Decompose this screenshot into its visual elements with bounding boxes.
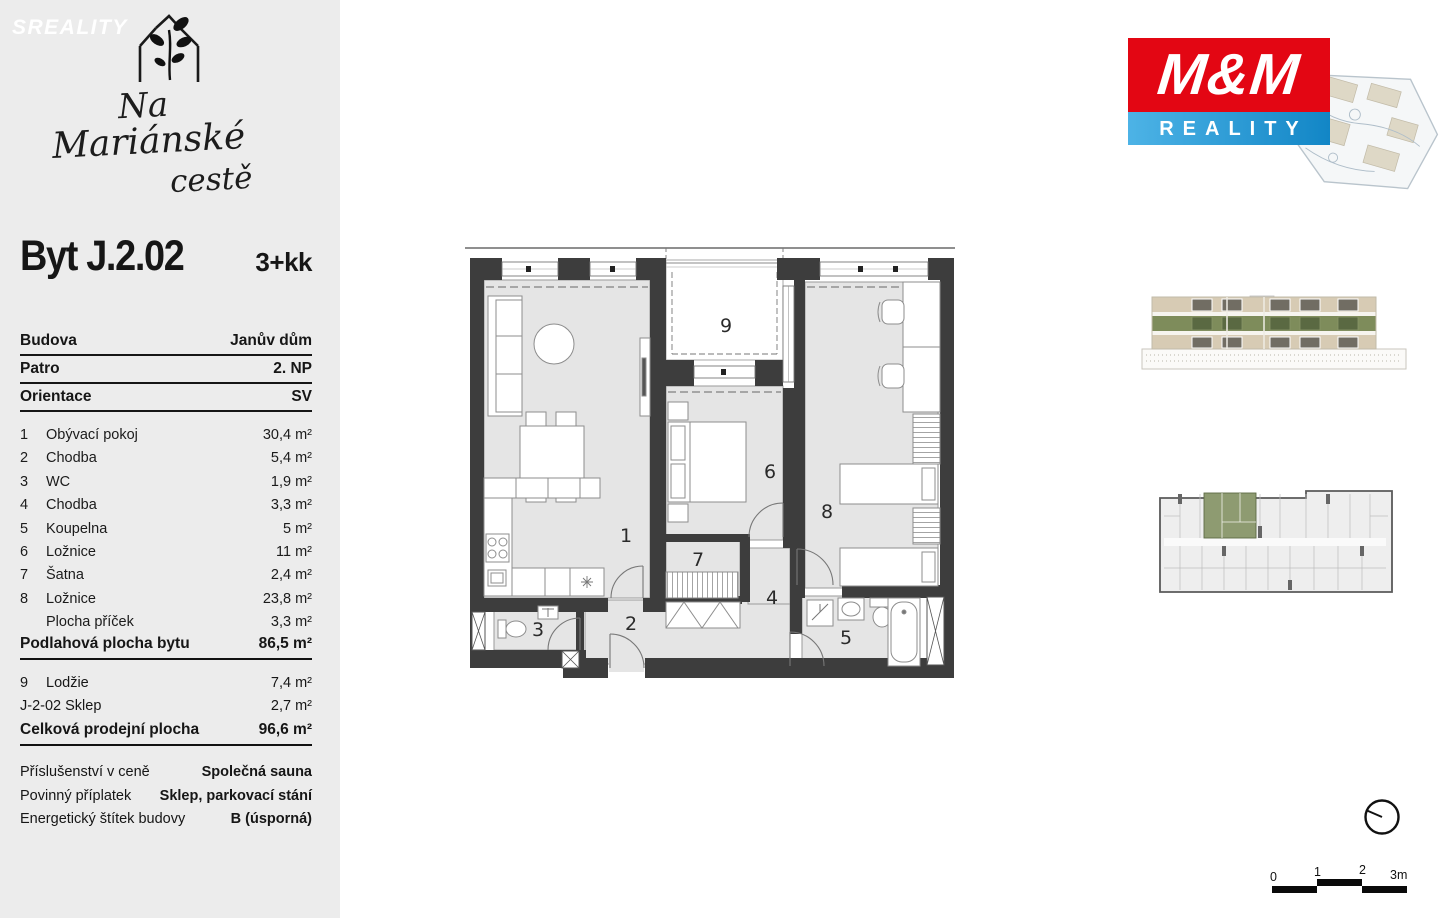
page: SREALITY Na Mariánské cestě Byt J.2.02 3…: [0, 0, 1440, 918]
toilet: [506, 621, 526, 637]
sreality-watermark: SREALITY: [12, 16, 128, 40]
floor-overview-plan: [1156, 486, 1396, 606]
room-row: 2Chodba5,4 m²: [20, 447, 312, 470]
stove: [486, 534, 509, 562]
scale-tick-2: 2: [1359, 864, 1366, 877]
room-area: 3,3 m²: [271, 494, 312, 517]
room-row: 6Ložnice11 m²: [20, 541, 312, 564]
room-num: 3: [20, 471, 46, 494]
room-name: Ložnice: [46, 588, 263, 611]
room-area: 3,3 m²: [271, 611, 312, 634]
agency-logo-bottom: REALITY: [1128, 112, 1330, 145]
info-value: Janův dům: [230, 332, 312, 350]
building-elevation: [1140, 295, 1410, 375]
room-name: Chodba: [46, 447, 271, 470]
room-num: 1: [20, 424, 46, 447]
room-list: 1Obývací pokoj30,4 m² 2Chodba5,4 m² 3WC1…: [20, 424, 312, 635]
room-label-4: 4: [766, 587, 778, 609]
note-value: B (úsporná): [231, 808, 312, 832]
room-area: 30,4 m²: [263, 424, 312, 447]
apartment-title: Byt J.2.02: [20, 232, 184, 281]
room-name: WC: [46, 471, 271, 494]
sreality-watermark-text: SREALITY: [12, 16, 128, 39]
note-label: Povinný příplatek: [20, 785, 131, 809]
info-value: 2. NP: [273, 360, 312, 378]
info-value: SV: [291, 388, 312, 406]
room-num: 7: [20, 564, 46, 587]
room-row: 4Chodba3,3 m²: [20, 494, 312, 517]
room-name: Koupelna: [46, 518, 283, 541]
room-num: 6: [20, 541, 46, 564]
scale-bar: 0 1 2 3m: [1262, 864, 1412, 900]
scale-tick-3m: 3m: [1390, 868, 1407, 882]
subtotal-value: 86,5 m²: [259, 635, 312, 653]
notes-list: Příslušenství v ceně Společná sauna Povi…: [20, 761, 312, 832]
room-name: Ložnice: [46, 541, 276, 564]
room-name: Obývací pokoj: [46, 424, 263, 447]
note-value: Sklep, parkovací stání: [160, 785, 312, 809]
room-num: 9: [20, 672, 46, 695]
room-row: 7Šatna2,4 m²: [20, 564, 312, 587]
project-name-line3: cestě: [169, 160, 253, 200]
room-area: 5 m²: [283, 518, 312, 541]
room-label-8: 8: [821, 501, 833, 523]
kitchen-counter: [484, 478, 600, 498]
room-name: Plocha příček: [46, 611, 271, 634]
floor-area-subtotal: Podlahová plocha bytu 86,5 m²: [20, 633, 312, 660]
room-label-2: 2: [625, 613, 637, 635]
room-row: 3WC1,9 m²: [20, 471, 312, 494]
room-row: 5Koupelna5 m²: [20, 518, 312, 541]
total-area-row: Celková prodejní plocha 96,6 m²: [20, 719, 312, 746]
info-row-budova: Budova Janův dům: [20, 328, 312, 356]
note-label: Energetický štítek budovy: [20, 808, 185, 832]
room-name: J-2-02 Sklep: [20, 695, 101, 718]
agency-logo-top: M&M: [1128, 38, 1330, 112]
info-label: Patro: [20, 360, 60, 378]
highlighted-apartment: [1204, 493, 1256, 538]
room-row: 8Ložnice23,8 m²: [20, 588, 312, 611]
desk-chair: [882, 300, 904, 324]
room-area: 7,4 m²: [271, 672, 312, 695]
agency-logo-block: M&M REALITY: [1128, 38, 1438, 198]
room-num: 8: [20, 588, 46, 611]
room-num: 5: [20, 518, 46, 541]
north-compass-icon: [1360, 795, 1404, 839]
room-row: Plocha příček3,3 m²: [20, 611, 312, 634]
room-area: 1,9 m²: [271, 471, 312, 494]
project-name-line2: Mariánské: [51, 116, 246, 167]
info-label: Orientace: [20, 388, 92, 406]
extra-row: 9 Lodžie 7,4 m²: [20, 672, 312, 695]
toilet-tank: [498, 620, 506, 638]
room-area: 2,4 m²: [271, 564, 312, 587]
total-label: Celková prodejní plocha: [20, 721, 199, 739]
info-label: Budova: [20, 332, 77, 350]
extra-row: J-2-02 Sklep 2,7 m²: [20, 695, 312, 718]
loggia: [666, 248, 783, 360]
info-row-orientace: Orientace SV: [20, 384, 312, 412]
extra-areas: 9 Lodžie 7,4 m² J-2-02 Sklep 2,7 m²: [20, 672, 312, 719]
room-name: Chodba: [46, 494, 271, 517]
scale-tick-1: 1: [1314, 865, 1321, 879]
subtotal-label: Podlahová plocha bytu: [20, 635, 190, 653]
apartment-floorplan: 1 2 3 4 5 6 7 8 9: [450, 240, 970, 680]
room-area: 2,7 m²: [271, 695, 312, 718]
room-label-7: 7: [692, 549, 704, 571]
note-row: Energetický štítek budovy B (úsporná): [20, 808, 312, 832]
project-house-logo-icon: [126, 6, 212, 88]
floorplan-drawing: 1 2 3 4 5 6 7 8 9: [450, 240, 970, 680]
room-label-5: 5: [840, 627, 852, 649]
washing-machine: [807, 600, 833, 626]
note-row: Povinný příplatek Sklep, parkovací stání: [20, 785, 312, 809]
agency-name: M&M: [1155, 46, 1303, 104]
room-num: 4: [20, 494, 46, 517]
note-row: Příslušenství v ceně Společná sauna: [20, 761, 312, 785]
room-row: 1Obývací pokoj30,4 m²: [20, 424, 312, 447]
room-name: Šatna: [46, 564, 271, 587]
room-name: Lodžie: [46, 672, 271, 695]
room-area: 11 m²: [276, 541, 312, 564]
building-info-table: Budova Janův dům Patro 2. NP Orientace S…: [20, 328, 312, 412]
scale-tick-0: 0: [1270, 870, 1277, 884]
room-label-9: 9: [720, 315, 732, 337]
info-panel: SREALITY Na Mariánské cestě Byt J.2.02 3…: [0, 0, 340, 918]
nightstand: [668, 402, 688, 420]
note-label: Příslušenství v ceně: [20, 761, 150, 785]
room-area: 23,8 m²: [263, 588, 312, 611]
coffee-table: [534, 324, 574, 364]
info-row-patro: Patro 2. NP: [20, 356, 312, 384]
room-area: 5,4 m²: [271, 447, 312, 470]
nightstand: [668, 504, 688, 522]
note-value: Společná sauna: [202, 761, 312, 785]
entrance-threshold: [609, 658, 644, 672]
room-num: 2: [20, 447, 46, 470]
room-label-3: 3: [532, 619, 544, 641]
apartment-layout: 3+kk: [255, 247, 312, 278]
agency-name-sub: REALITY: [1150, 119, 1308, 139]
total-value: 96,6 m²: [259, 721, 312, 739]
room-label-6: 6: [764, 461, 776, 483]
room-num: [20, 611, 46, 634]
room-label-1: 1: [620, 525, 632, 547]
desk-chair: [882, 364, 904, 388]
